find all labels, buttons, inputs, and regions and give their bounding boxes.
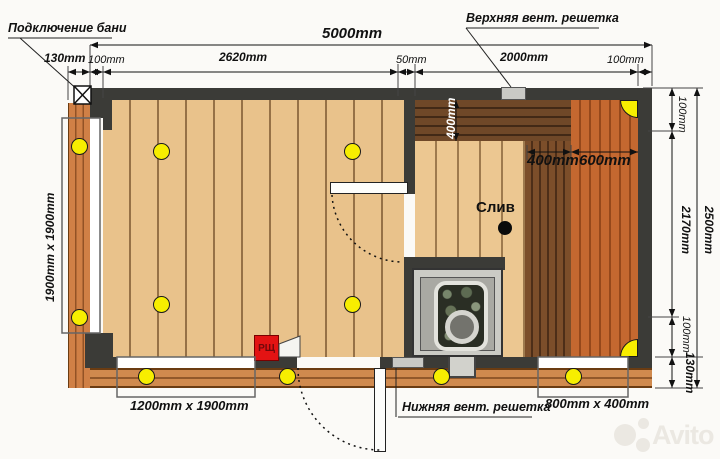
window-left-label: 1900mm x 1900mm [44,193,57,302]
porch-light-icon [565,368,582,385]
watermark-logo-icon [614,424,636,446]
dim-wall-top: 100mm [675,96,688,133]
ceiling-light-icon [344,296,361,313]
window-left-glass [90,118,100,333]
porch-light-icon [138,368,155,385]
dim-cladding-left: 130mm [44,52,85,65]
dim-overall-depth: 2500mm [702,206,715,254]
watermark-logo-icon [636,438,650,452]
lower-vent-label: Нижняя вент. решетка [402,400,550,414]
dim-overall-width: 5000mm [322,27,382,40]
window-front-left-glass [117,357,255,368]
ceiling-light-icon [153,143,170,160]
sauna-bench-main [571,100,638,357]
bench-step-width-label: 400mm [527,154,579,167]
entrance-door-leaf [374,368,386,452]
dim-washroom-width: 2620mm [219,51,267,64]
dim-sauna-width: 2000mm [500,51,548,64]
sauna-bench-step [525,141,571,357]
sauna-bench-upper [415,100,571,141]
washroom-floor [103,100,404,357]
upper-vent-label: Верхняя вент. решетка [466,11,619,25]
drain-label: Слив [476,199,515,216]
ceiling-light-icon [153,296,170,313]
porch-light-icon [433,368,450,385]
bench-upper-depth-label: 400mm [445,98,458,139]
bench-main-width-label: 600mm [579,154,631,167]
wall-left-corner-step [103,100,112,130]
dim-wall-bottom: 100mm [679,316,692,353]
porch-light-icon [279,368,296,385]
dim-partition: 50mm [396,54,427,67]
lower-vent-grille [392,357,424,368]
upper-vent-grille [501,87,526,100]
stove-chimney-icon [445,310,479,344]
wall-left-upper [90,88,103,118]
window-front-right-label: 800mm x 400mm [545,397,649,410]
window-front-left-label: 1200mm x 1900mm [130,399,249,412]
electrical-panel-label: РЩ [258,343,275,354]
wall-right [638,88,652,368]
ceiling-light-icon [344,143,361,160]
wall-light-icon [71,138,88,155]
watermark-logo-icon [638,418,649,429]
dim-wall-left: 100mm [88,54,125,67]
watermark: Avito [604,412,720,456]
window-front-right-glass [538,357,628,368]
wall-light-icon [71,309,88,326]
electrical-panel: РЩ [254,335,279,361]
interior-door-leaf [330,182,408,194]
dim-wall-right: 100mm [607,54,644,67]
watermark-text: Avito [652,420,714,451]
bath-floor-plan: РЩ [0,0,720,459]
partition-upper [404,100,415,194]
bath-connection-label: Подключение бани [8,21,127,35]
utility-connection-icon [74,86,91,104]
dim-interior-depth: 2170mm [679,206,692,254]
dim-porch-depth: 130mm [683,352,696,393]
wall-bottom-right [628,357,652,368]
wall-top [90,88,652,100]
